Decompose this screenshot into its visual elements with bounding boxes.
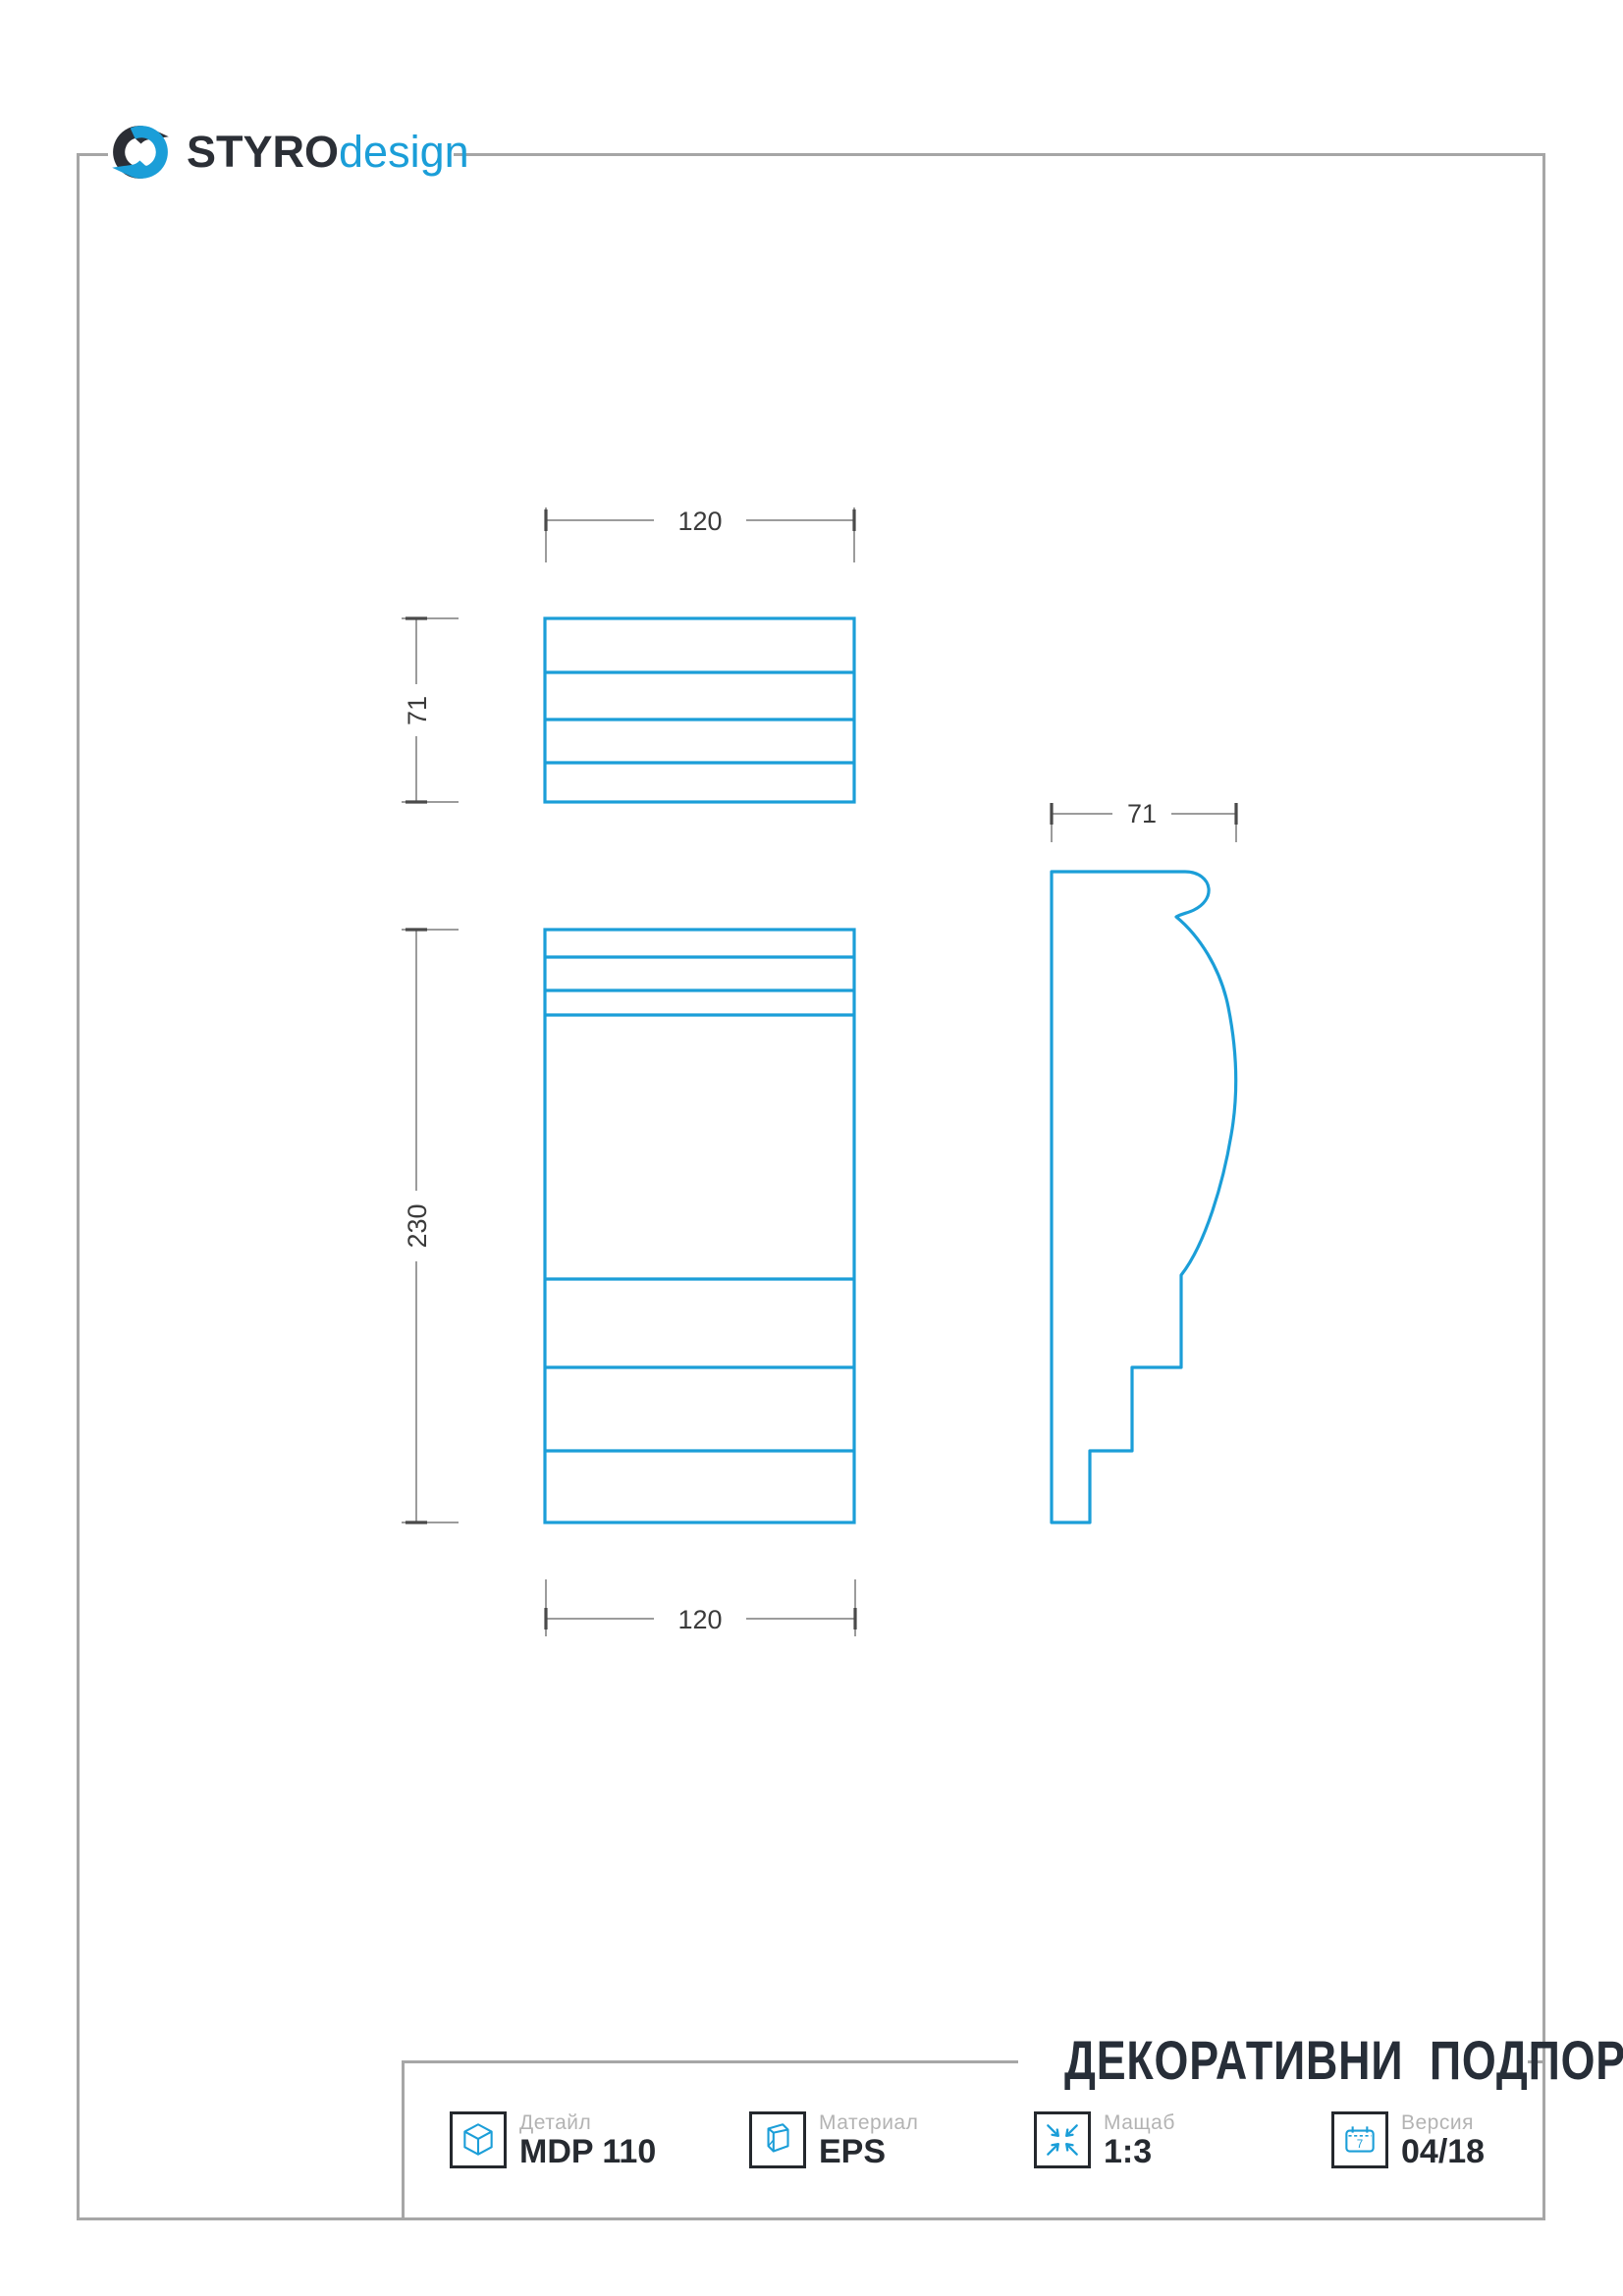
field-scale: Мащаб 1:3 [1034, 2111, 1175, 2170]
calendar-icon: 7 [1331, 2111, 1388, 2168]
front-view [545, 930, 854, 1522]
drawing-sheet: STYROdesign [0, 0, 1623, 2296]
dim-front-width: 120 [546, 1579, 855, 1636]
scale-icon [1034, 2111, 1091, 2168]
side-profile-view [1052, 872, 1236, 1522]
dimension-label: 230 [403, 1203, 432, 1248]
dim-top-width: 120 [546, 507, 854, 562]
dim-top-view-height: 71 [402, 618, 459, 802]
dimension-label: 120 [677, 1605, 722, 1634]
field-detail: Детайл MDP 110 [450, 2111, 656, 2170]
calendar-day-text: 7 [1357, 2139, 1363, 2151]
title-block-divider [402, 2060, 405, 2218]
field-value-detail: MDP 110 [519, 2134, 656, 2169]
drawing-canvas: 120 71 [0, 0, 1623, 2296]
field-value-version: 04/18 [1401, 2134, 1485, 2169]
title-block-top-line [402, 2060, 1018, 2063]
field-material: Материал EPS [749, 2111, 918, 2170]
cube-icon [450, 2111, 507, 2168]
field-label-scale: Мащаб [1104, 2111, 1175, 2134]
field-value-scale: 1:3 [1104, 2134, 1175, 2169]
dim-front-height: 230 [402, 930, 459, 1522]
dimension-label: 120 [677, 507, 722, 536]
field-version: 7 Версия 04/18 [1331, 2111, 1485, 2170]
field-label-detail: Детайл [519, 2111, 656, 2134]
dim-side-width: 71 [1052, 799, 1236, 842]
dimension-label: 71 [403, 696, 432, 725]
material-icon [749, 2111, 806, 2168]
dimension-label: 71 [1127, 799, 1157, 828]
drawing-title: ДЕКОРАТИВНИ ПОДПОРИ [1064, 2032, 1488, 2089]
field-label-material: Материал [819, 2111, 918, 2134]
field-label-version: Версия [1401, 2111, 1485, 2134]
field-value-material: EPS [819, 2134, 918, 2169]
top-view [545, 618, 854, 802]
